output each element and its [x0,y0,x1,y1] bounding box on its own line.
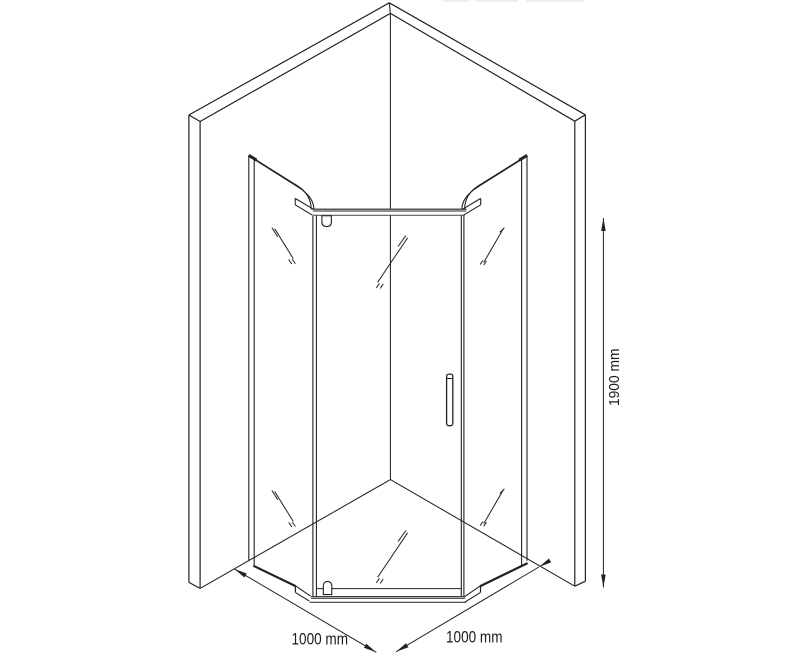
svg-text:1900 mm: 1900 mm [607,349,623,407]
svg-text:1000 mm: 1000 mm [292,630,349,648]
svg-text:1000 mm: 1000 mm [446,629,503,647]
